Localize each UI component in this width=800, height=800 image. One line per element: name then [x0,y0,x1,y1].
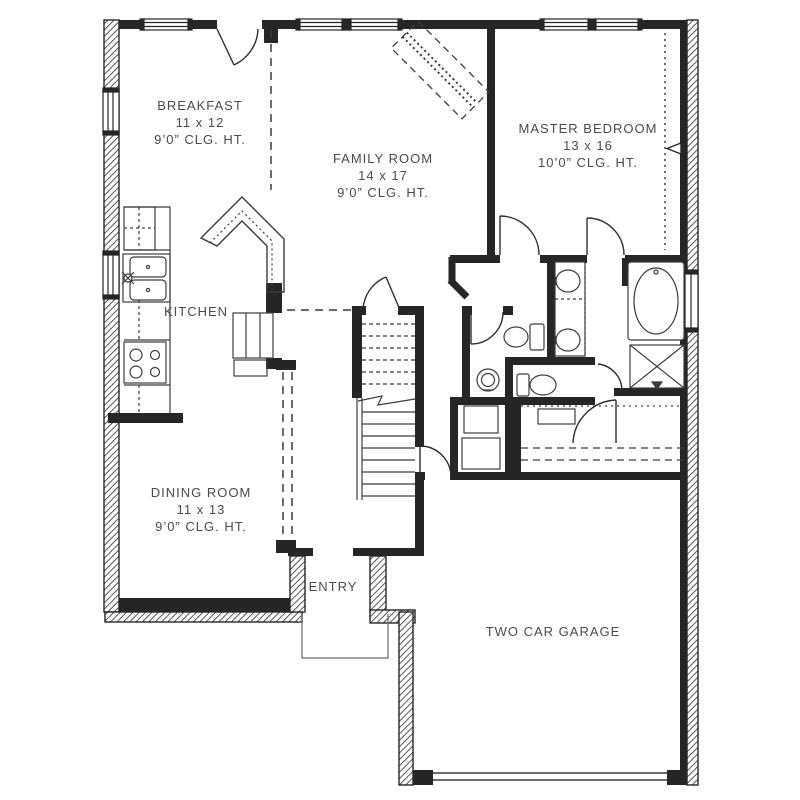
toilet-icon [517,374,556,396]
master-bath-door-icon [587,218,624,255]
master-window-icon [592,19,642,30]
stair-door-icon [363,277,400,310]
master-door-icon [500,216,539,255]
garage-overhead-door [433,773,667,780]
room-label-garage: TWO CAR GARAGE [453,623,653,640]
room-name: DINING ROOM [111,484,291,501]
room-name: BREAKFAST [110,97,290,114]
bathtub-icon [628,262,684,340]
kitchen-bar-icon [201,197,284,292]
cooktop-icon [124,342,166,383]
family-window-icon [347,19,402,30]
floor-plan: BREAKFAST 11 x 12 9’0” CLG. HT. FAMILY R… [0,0,800,800]
washer-icon [464,406,498,433]
room-size: 11 x 13 [111,501,291,518]
room-size: 11 x 12 [110,114,290,131]
vanity-sinks-icon [555,262,585,356]
wc-door-icon [598,364,622,390]
media-niche-icon [391,21,489,119]
pedestal-sink-icon [477,369,499,391]
room-name: MASTER BEDROOM [488,120,688,137]
room-label-family-room: FAMILY ROOM 14 x 17 9’0” CLG. HT. [293,150,473,201]
room-label-dining-room: DINING ROOM 11 x 13 9’0” CLG. HT. [111,484,291,535]
hall-bath-door-icon [471,312,503,344]
room-ceiling: 9’0” CLG. HT. [293,184,473,201]
toilet-icon [504,324,544,350]
shower-icon [630,345,684,389]
room-name: TWO CAR GARAGE [453,623,653,640]
room-ceiling: 9’0” CLG. HT. [111,518,291,535]
dryer-icon [462,438,500,469]
room-ceiling: 9’0” CLG. HT. [110,131,290,148]
room-label-entry: ENTRY [293,578,373,595]
room-size: 13 x 16 [488,137,688,154]
room-name: ENTRY [293,578,373,595]
master-window-icon [540,19,592,30]
room-label-kitchen: KITCHEN [146,303,246,320]
family-window-icon [296,19,346,30]
patio-door-icon [217,29,258,65]
breakfast-window-icon [140,19,192,30]
room-name: KITCHEN [146,303,246,320]
room-label-breakfast: BREAKFAST 11 x 12 9’0” CLG. HT. [110,97,290,148]
room-name: FAMILY ROOM [293,150,473,167]
closet-details [521,406,684,460]
stairs-icon [357,324,415,500]
kitchen-sink-window-icon [103,251,119,299]
kitchen-sink-icon [122,254,170,302]
room-ceiling: 10’0” CLG. HT. [488,154,688,171]
dashed-lines [271,30,665,540]
laundry-appliances [462,406,500,469]
room-size: 14 x 17 [293,167,473,184]
room-label-master-bedroom: MASTER BEDROOM 13 x 16 10’0” CLG. HT. [488,120,688,171]
